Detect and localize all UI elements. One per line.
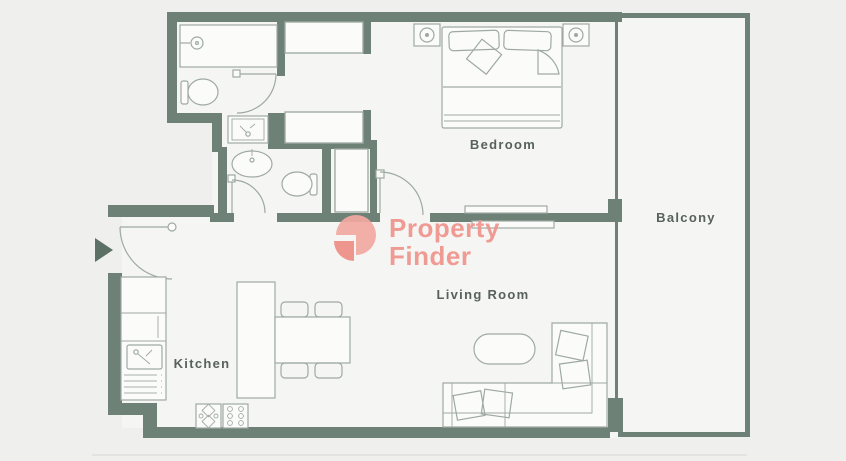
property-finder-watermark: Property Finder xyxy=(330,213,500,270)
drawer-unit xyxy=(124,372,162,398)
bed xyxy=(442,27,562,128)
wardrobe-bottom xyxy=(285,112,363,143)
wall-segment xyxy=(277,12,285,76)
wall-segment xyxy=(268,113,285,149)
coffee-table xyxy=(474,334,535,364)
property-finder-logo-icon xyxy=(330,213,382,261)
toilet-1 xyxy=(181,79,218,105)
balcony-wall xyxy=(745,13,750,437)
wall-segment xyxy=(363,110,371,143)
vanity-sink xyxy=(228,116,268,143)
balcony-glass xyxy=(615,22,618,199)
exterior-notch xyxy=(167,123,212,205)
wall-segment xyxy=(322,147,331,217)
kitchen-island xyxy=(237,282,275,398)
wall-segment xyxy=(212,113,222,152)
balcony-glass xyxy=(615,222,618,398)
linen-shelves xyxy=(335,149,368,212)
entry-arrow-icon xyxy=(95,238,113,262)
wall-segment xyxy=(108,205,214,217)
wardrobe-top xyxy=(285,22,363,53)
bedroom-label: Bedroom xyxy=(470,137,536,152)
nightstand-lamp-right xyxy=(563,24,589,46)
wall-segment xyxy=(608,398,623,432)
kitchen-label: Kitchen xyxy=(174,356,231,371)
balcony-label: Balcony xyxy=(656,210,716,225)
wall-segment xyxy=(167,12,177,123)
floor-plan: Bedroom Balcony Living Room Kitchen Prop… xyxy=(0,0,846,461)
wall-segment xyxy=(608,199,622,222)
toilet-2 xyxy=(282,172,317,196)
wall-segment xyxy=(167,12,622,22)
wall-segment xyxy=(108,273,122,414)
photo-edge-line xyxy=(92,454,747,456)
balcony-floor xyxy=(618,13,750,437)
wall-segment xyxy=(218,147,227,217)
watermark-line1: Property xyxy=(389,214,500,242)
living-room-label: Living Room xyxy=(436,287,529,302)
nightstand-lamp-left xyxy=(414,24,440,46)
wall-segment xyxy=(370,147,377,217)
balcony-wall xyxy=(618,432,750,437)
watermark-line2: Finder xyxy=(389,242,500,270)
wall-segment xyxy=(143,427,610,438)
wall-segment xyxy=(363,12,371,54)
balcony-wall xyxy=(618,13,750,18)
dining-table xyxy=(275,317,350,363)
watermark-text: Property Finder xyxy=(389,214,500,270)
